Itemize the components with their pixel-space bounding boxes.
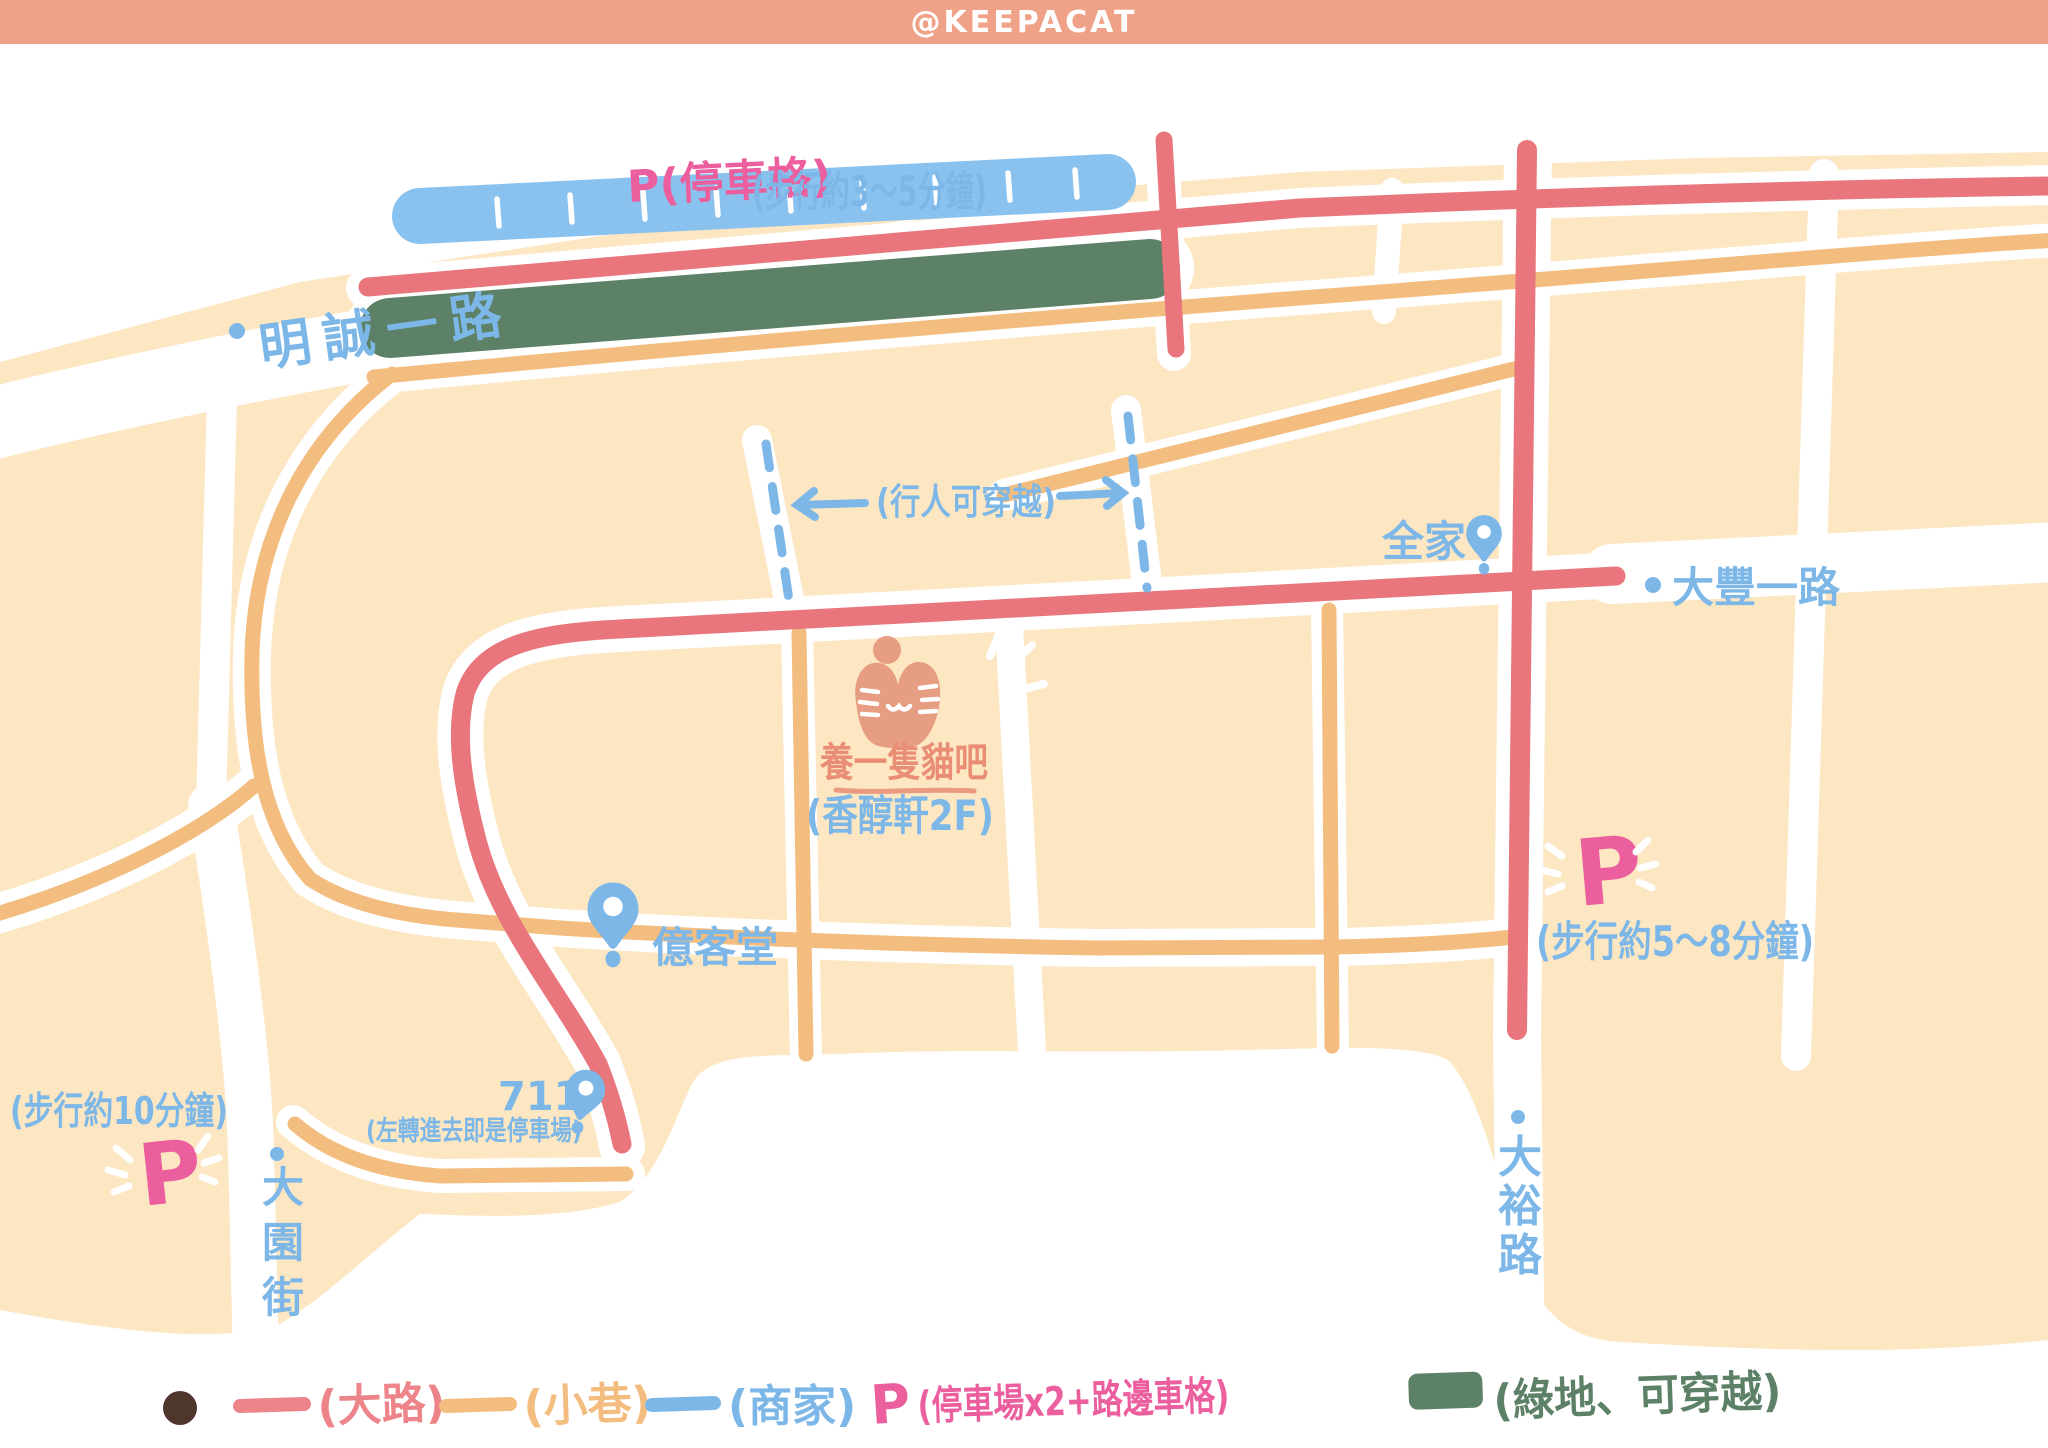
street-dot-dayu	[1511, 1110, 1525, 1124]
alley-vertical1	[799, 633, 806, 1054]
legend-label-main-road: (大路)	[317, 1378, 447, 1433]
cafe-floor-label: (香醇軒2F)	[806, 791, 994, 840]
legend-orange-dash-icon	[446, 1404, 510, 1406]
legend: (大路) (小巷) (商家) P (停車場x2+路邊車格) (綠地、可穿越)	[163, 1366, 1782, 1437]
map-poster: @KEEPACAT	[0, 0, 2048, 1448]
road-dayu	[1517, 150, 1527, 1030]
street-label-dayuan: 大園街	[261, 1163, 304, 1322]
street-label-dayu: 大裕路	[1498, 1132, 1543, 1281]
legend-p-icon: P	[869, 1371, 913, 1437]
street-left-vertical	[211, 360, 223, 806]
legend-red-dash-icon	[240, 1404, 304, 1406]
legend-label-parking: (停車場x2+路邊車格)	[917, 1373, 1230, 1430]
header-bar: @KEEPACAT	[0, 0, 2048, 44]
street-label-dafeng: 大豐一路	[1672, 563, 1841, 612]
legend-blue-dash-icon	[652, 1403, 714, 1405]
legend-label-green: (綠地、可穿越)	[1493, 1366, 1783, 1427]
legend-dot-icon	[163, 1391, 197, 1425]
parking-left-p-icon: P	[134, 1121, 207, 1227]
yiketang-label: 億客堂	[652, 923, 778, 972]
watermark-text: @KEEPACAT	[910, 5, 1137, 40]
map-canvas: (行人可穿越) P(停車格) (步行約3～5分鐘) 明誠一路 大豐一路 大園街 …	[0, 44, 2048, 1448]
cafe-name-label: 養一隻貓吧	[819, 740, 988, 786]
cat-icon-head	[873, 636, 901, 664]
pedestrian-note: (行人可穿越)	[876, 482, 1056, 523]
legend-label-shops: (商家)	[728, 1381, 856, 1432]
legend-label-alley: (小巷)	[523, 1378, 653, 1433]
parking-right-walk-label: (步行約5～8分鐘)	[1536, 917, 1814, 966]
street-dot-mingcheng	[229, 323, 245, 339]
road-park-stub	[1164, 140, 1176, 349]
parking-top-walk-label: (步行約3～5分鐘)	[752, 167, 987, 216]
parking-top-label: P(停車格) (步行約3～5分鐘)	[626, 151, 987, 216]
seven11-note: (左轉進去即是停車場)	[366, 1115, 582, 1147]
street-dot-dayuan	[270, 1147, 284, 1161]
street-dot-dafeng	[1645, 577, 1661, 593]
parking-right-p-icon: P	[1571, 815, 1648, 927]
legend-green-square-icon	[1408, 1371, 1483, 1410]
alley-vertical2	[1329, 610, 1332, 1046]
familymart-label: 全家	[1381, 517, 1466, 566]
